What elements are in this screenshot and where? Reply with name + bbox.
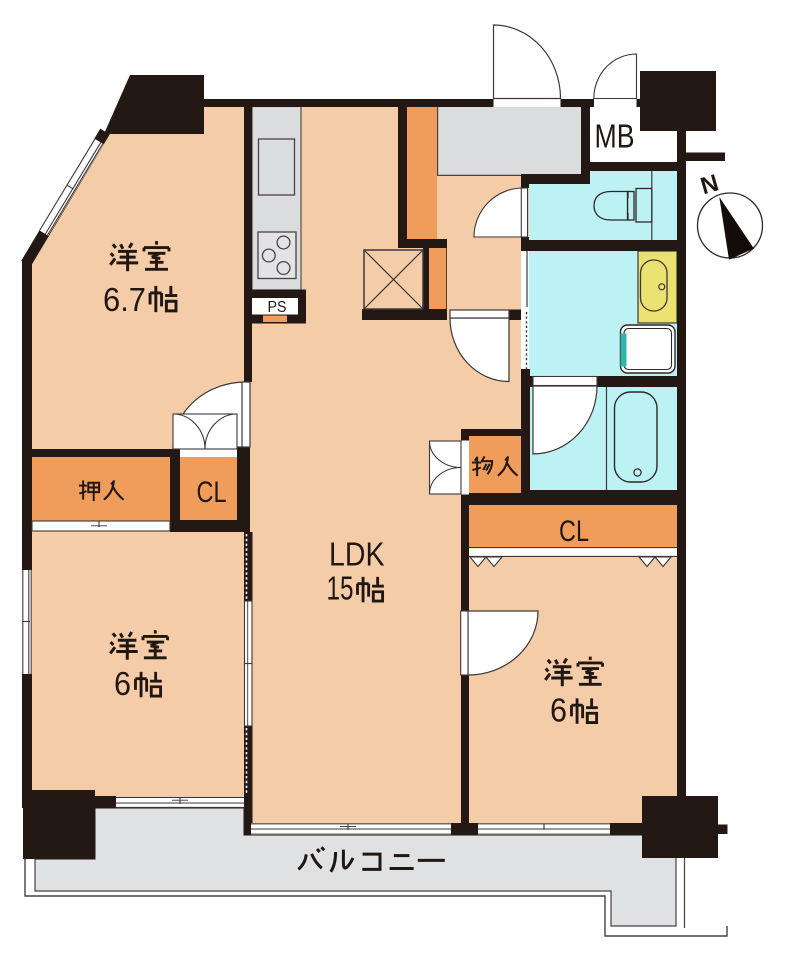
svg-text:15: 15 bbox=[327, 570, 354, 607]
svg-text:6.7: 6.7 bbox=[103, 281, 146, 318]
svg-text:PS: PS bbox=[268, 299, 287, 316]
svg-text:MB: MB bbox=[595, 118, 635, 155]
svg-text:6: 6 bbox=[550, 692, 567, 729]
svg-text:LDK: LDK bbox=[329, 537, 385, 574]
svg-text:6: 6 bbox=[114, 665, 131, 702]
svg-text:CL: CL bbox=[559, 515, 589, 548]
svg-text:CL: CL bbox=[197, 476, 227, 509]
svg-text:N: N bbox=[698, 170, 722, 201]
